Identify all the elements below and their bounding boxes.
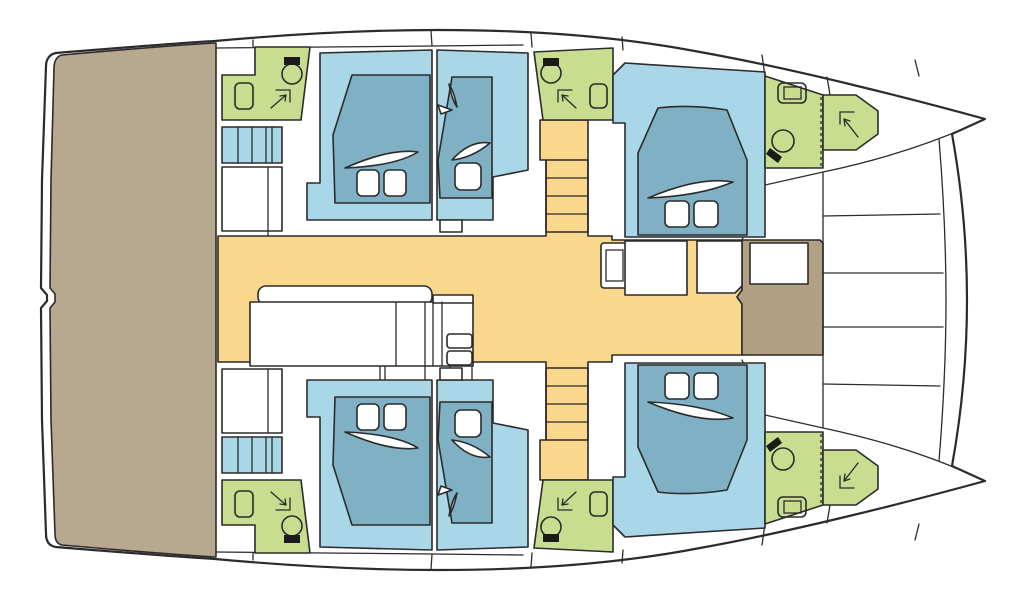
port-mid-bathroom — [534, 48, 613, 120]
forward-seat — [697, 241, 742, 293]
galley-unit-top — [433, 295, 473, 303]
pillow — [665, 201, 689, 227]
starboard-forward-berth — [638, 365, 747, 494]
pillow — [384, 170, 406, 196]
deck-plan-svg — [0, 0, 1024, 600]
port-aft-berth — [333, 75, 430, 203]
port-aft-cabin — [307, 50, 432, 220]
starboard-aft-cabin — [307, 380, 432, 550]
sofa-seat — [250, 302, 473, 366]
aft-deck — [50, 43, 216, 557]
forward-seat — [625, 241, 687, 295]
port-aft-locker — [222, 167, 282, 231]
starboard-forward-cabin — [613, 363, 765, 537]
pillow — [455, 410, 481, 437]
toilet-tank-icon — [543, 534, 559, 542]
pillow — [455, 163, 481, 190]
starboard-aft-locker — [222, 369, 282, 433]
galley-drawer — [447, 351, 472, 365]
pillow — [357, 404, 379, 430]
step-box — [440, 368, 462, 380]
catamaran-floor-plan — [0, 0, 1024, 600]
toilet-tank-icon — [543, 58, 559, 66]
foredeck-hatch — [750, 243, 808, 284]
pillow — [357, 170, 379, 196]
port-forward-cabin — [613, 63, 765, 237]
port-forward-berth — [638, 106, 747, 235]
toilet-tank-icon — [284, 57, 300, 65]
pillow — [694, 373, 718, 399]
galley-drawer — [447, 334, 472, 348]
foredeck — [737, 240, 823, 355]
toilet-tank-icon — [284, 535, 300, 543]
starboard-aft-berth — [333, 397, 430, 525]
pillow — [384, 404, 406, 430]
pillow — [665, 373, 689, 399]
pillow — [694, 201, 718, 227]
step-box — [440, 220, 462, 232]
starboard-mid-bathroom — [534, 480, 613, 552]
